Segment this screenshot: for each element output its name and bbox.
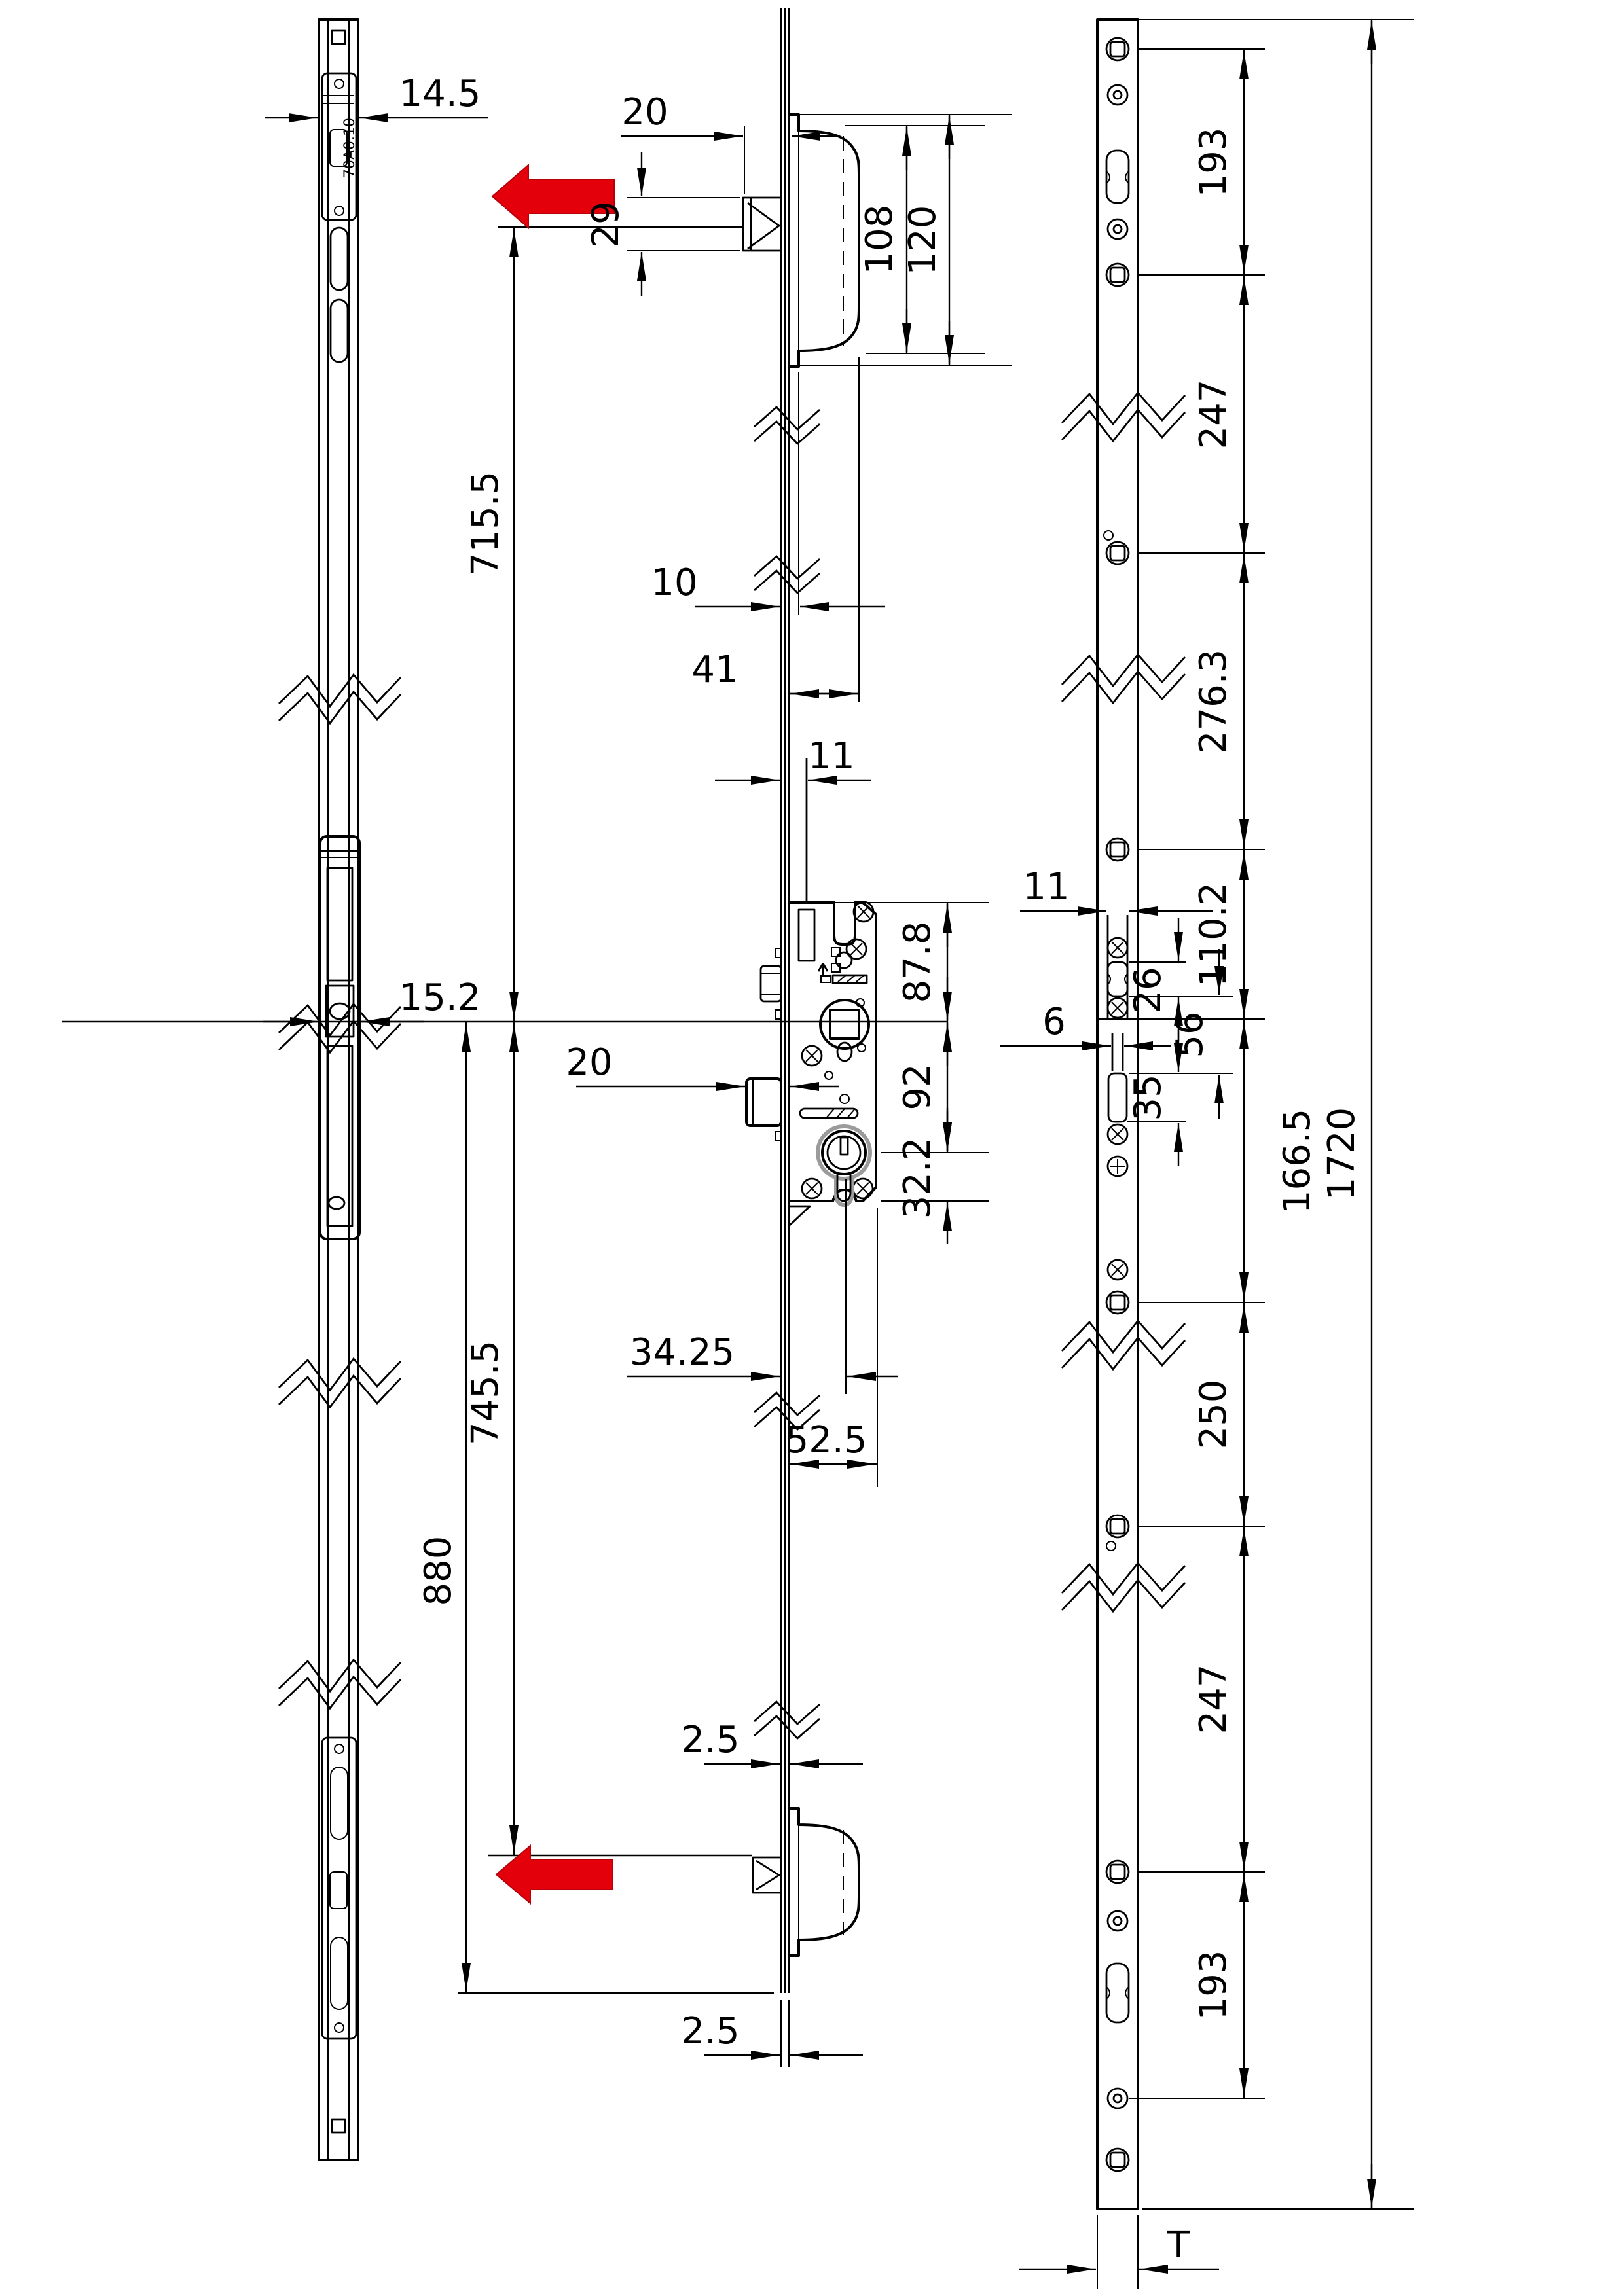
top-fixing-hole: [332, 31, 345, 44]
left-side-view: 70A0.10: [263, 20, 488, 2160]
dim-label-14-5: 14.5: [399, 73, 481, 115]
dim-34-25: 34.25: [627, 1331, 898, 1376]
break-symbol: [279, 1359, 401, 1407]
dim-29: 29: [585, 152, 740, 296]
break-symbol: [1062, 393, 1185, 441]
dim-166-5: 166.5: [1244, 1019, 1319, 1302]
right-dimensions: 11 26 56 6 35: [1000, 20, 1414, 2289]
dim-120: 120: [902, 115, 949, 365]
case-screw: [802, 1046, 822, 1066]
dim-label-247-top: 247: [1192, 380, 1235, 450]
rail-square-hole: [1106, 1291, 1129, 1314]
dim-label-56: 56: [1169, 1011, 1211, 1058]
dim-label-166-5: 166.5: [1276, 1109, 1319, 1213]
dim-14-5: 14.5: [265, 73, 488, 118]
rail-slot: [1106, 151, 1129, 203]
dim-110-2: 110.2: [1192, 850, 1244, 1019]
dim-label-1720: 1720: [1321, 1107, 1363, 1201]
dim-15-2: 15.2: [263, 977, 481, 1022]
technical-drawing-page: 70A0.10: [0, 0, 1623, 2296]
dim-label-32-2: 32.2: [896, 1138, 939, 1219]
top-latch-bolt: [743, 198, 781, 251]
dim-276-3: 276.3: [1192, 553, 1244, 850]
rail-square-hole: [1106, 838, 1129, 861]
dim-label-193-bottom: 193: [1192, 1950, 1235, 2020]
dim-2-5-upper: 2.5: [681, 1719, 863, 1764]
up-arrow-icon: [818, 963, 828, 977]
break-symbol: [1062, 1321, 1185, 1369]
dim-label-10: 10: [651, 562, 697, 604]
rail-slot: [1106, 1964, 1129, 2022]
break-symbol: [754, 1702, 820, 1738]
center-gearbox-side: [320, 836, 359, 1239]
bottom-latch-assembly: [753, 1808, 859, 1956]
dim-label-11-right: 11: [1023, 866, 1069, 908]
dim-108: 108: [858, 126, 907, 353]
dim-247-top: 247: [1192, 275, 1244, 553]
case-screw: [853, 1179, 873, 1198]
rail-washer-hole: [1108, 85, 1127, 105]
dim-193-top: 193: [1192, 49, 1244, 275]
dim-1720: 1720: [1321, 20, 1372, 2209]
dim-745-5: 745.5: [464, 1022, 514, 1856]
dim-label-6: 6: [1042, 1001, 1066, 1043]
rail-square-hole: [1106, 542, 1129, 564]
dim-label-110-2: 110.2: [1192, 882, 1235, 987]
dim-92: 92: [896, 1022, 947, 1153]
dim-label-250: 250: [1192, 1380, 1235, 1450]
dim-20-deadbolt: 20: [566, 1041, 839, 1086]
module-label: 70A0.10: [342, 118, 358, 178]
handle-follower: [820, 1000, 869, 1049]
bottom-latch-bolt: [753, 1857, 781, 1893]
dim-label-247-bottom: 247: [1192, 1664, 1235, 1734]
bottom-fixing-hole: [332, 2119, 345, 2132]
break-symbol: [754, 556, 820, 593]
dim-label-20-top: 20: [621, 91, 668, 134]
rail-square-hole: [1106, 264, 1129, 286]
case-screw: [802, 1179, 822, 1198]
rail-square-hole: [1106, 2149, 1129, 2171]
dim-label-15-2: 15.2: [399, 977, 481, 1019]
dim-label-87-8: 87.8: [896, 922, 939, 1003]
dim-label-120: 120: [902, 206, 944, 276]
dim-label-276-3: 276.3: [1192, 649, 1235, 754]
dim-880: 880: [417, 1022, 466, 1993]
deadbolt-keep: [1108, 1033, 1127, 1176]
break-symbol: [279, 675, 401, 723]
center-section-view: 20 29 108 120 10: [62, 8, 1012, 2067]
break-symbol: [754, 407, 820, 444]
rail-washer-hole: [1108, 219, 1127, 239]
dim-label-92: 92: [896, 1064, 939, 1110]
dim-label-29: 29: [585, 201, 627, 247]
dim-label-11-middle: 11: [808, 735, 854, 778]
dim-label-41: 41: [691, 649, 738, 691]
dim-label-52-5: 52.5: [786, 1419, 867, 1462]
dim-label-108: 108: [858, 205, 901, 275]
dim-32-2: 32.2: [896, 1111, 947, 1244]
rail-square-hole: [1106, 1861, 1129, 1883]
dim-20-top: 20: [621, 91, 839, 194]
dim-label-2-5-lower: 2.5: [681, 2010, 739, 2053]
rail-square-hole: [1106, 38, 1129, 60]
dim-label-2-5-upper: 2.5: [681, 1719, 739, 1761]
dim-label-715-5: 715.5: [464, 471, 507, 576]
dim-label-T: T: [1167, 2224, 1190, 2267]
dim-247-bottom: 247: [1192, 1526, 1244, 1872]
break-symbol: [1062, 655, 1185, 703]
deadbolt: [746, 1079, 781, 1126]
bottom-gearbox-side: [322, 1738, 356, 2039]
top-latch-assembly: [743, 115, 859, 367]
dim-label-35: 35: [1127, 1074, 1169, 1121]
latch-keep: [1108, 915, 1127, 1019]
dim-label-193-top: 193: [1192, 128, 1235, 198]
dim-87-8: 87.8: [896, 903, 947, 1022]
dim-715-5: 715.5: [464, 227, 514, 1022]
break-symbol: [279, 1660, 401, 1708]
dim-label-745-5: 745.5: [464, 1340, 507, 1445]
dim-T: T: [1019, 2215, 1219, 2289]
dim-2-5-lower: 2.5: [681, 2000, 863, 2067]
dim-label-26: 26: [1127, 967, 1169, 1013]
rail-square-hole: [1106, 1515, 1129, 1537]
dim-52-5: 52.5: [786, 1419, 877, 1464]
dim-193-bottom: 193: [1192, 1872, 1244, 2098]
multipoint-lock-drawing: 70A0.10: [0, 0, 1623, 2296]
lock-case: [746, 902, 876, 1226]
rail-screw: [1108, 1260, 1127, 1280]
dim-label-880: 880: [417, 1536, 460, 1606]
dim-11-right: 11: [1020, 866, 1213, 911]
dim-250: 250: [1192, 1302, 1244, 1526]
dim-label-34-25: 34.25: [630, 1331, 735, 1374]
dim-label-20-deadbolt: 20: [566, 1041, 612, 1084]
break-symbol: [1062, 1563, 1185, 1611]
rail-washer-hole: [1108, 2089, 1127, 2108]
roller-bolt: [761, 966, 781, 1001]
euro-cylinder: [818, 1126, 870, 1205]
rail-washer-hole: [1108, 1911, 1127, 1931]
dim-11-middle: 11: [715, 735, 871, 903]
